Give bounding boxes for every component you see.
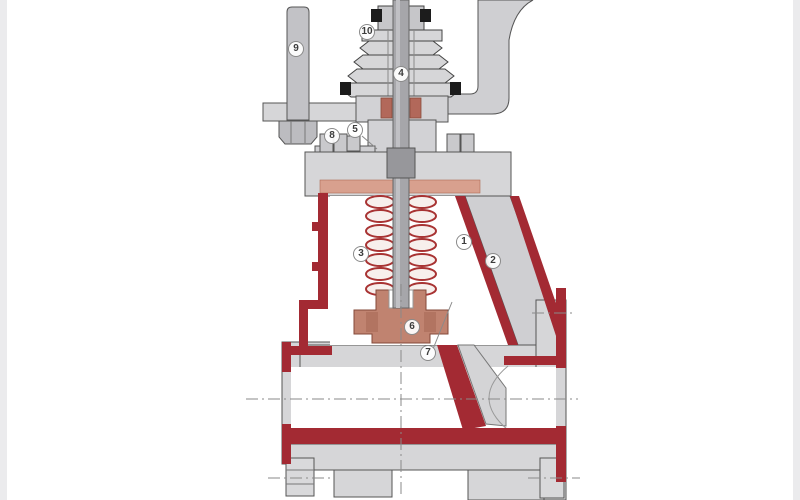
callout-4: 4 xyxy=(393,66,409,82)
callout-5: 5 xyxy=(347,122,363,138)
diagram-canvas: 12345678910 xyxy=(0,0,800,500)
callout-9: 9 xyxy=(288,41,304,57)
callout-2: 2 xyxy=(485,253,501,269)
callout-8: 8 xyxy=(324,128,340,144)
yoke-bolt xyxy=(279,7,317,144)
callout-1: 1 xyxy=(456,234,472,250)
callout-10: 10 xyxy=(359,24,375,40)
callout-7: 7 xyxy=(420,345,436,361)
callout-6: 6 xyxy=(404,319,420,335)
callout-3: 3 xyxy=(353,246,369,262)
